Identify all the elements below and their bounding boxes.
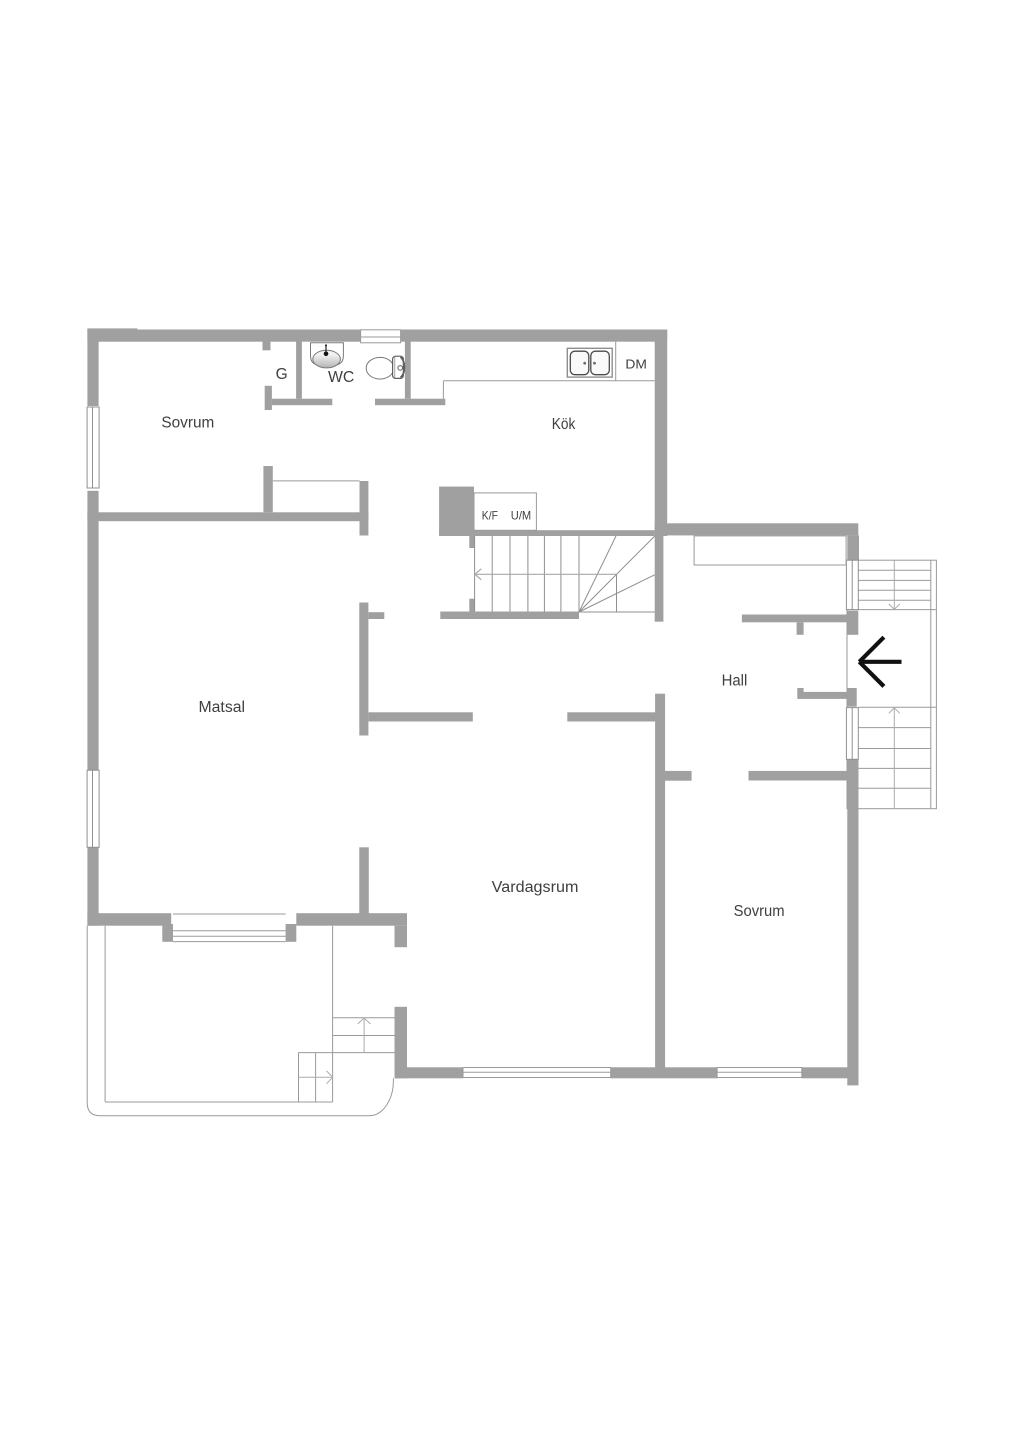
svg-text:K/F: K/F	[482, 508, 498, 522]
svg-text:DM: DM	[625, 356, 647, 371]
svg-text:U/M: U/M	[511, 508, 531, 522]
svg-text:WC: WC	[328, 369, 354, 386]
svg-text:G: G	[276, 366, 288, 383]
svg-text:Kök: Kök	[552, 416, 576, 433]
svg-text:Matsal: Matsal	[199, 699, 246, 716]
svg-text:Hall: Hall	[722, 672, 748, 689]
svg-text:Vardagsrum: Vardagsrum	[492, 879, 579, 896]
svg-text:Sovrum: Sovrum	[734, 903, 785, 920]
svg-text:Sovrum: Sovrum	[161, 414, 214, 431]
